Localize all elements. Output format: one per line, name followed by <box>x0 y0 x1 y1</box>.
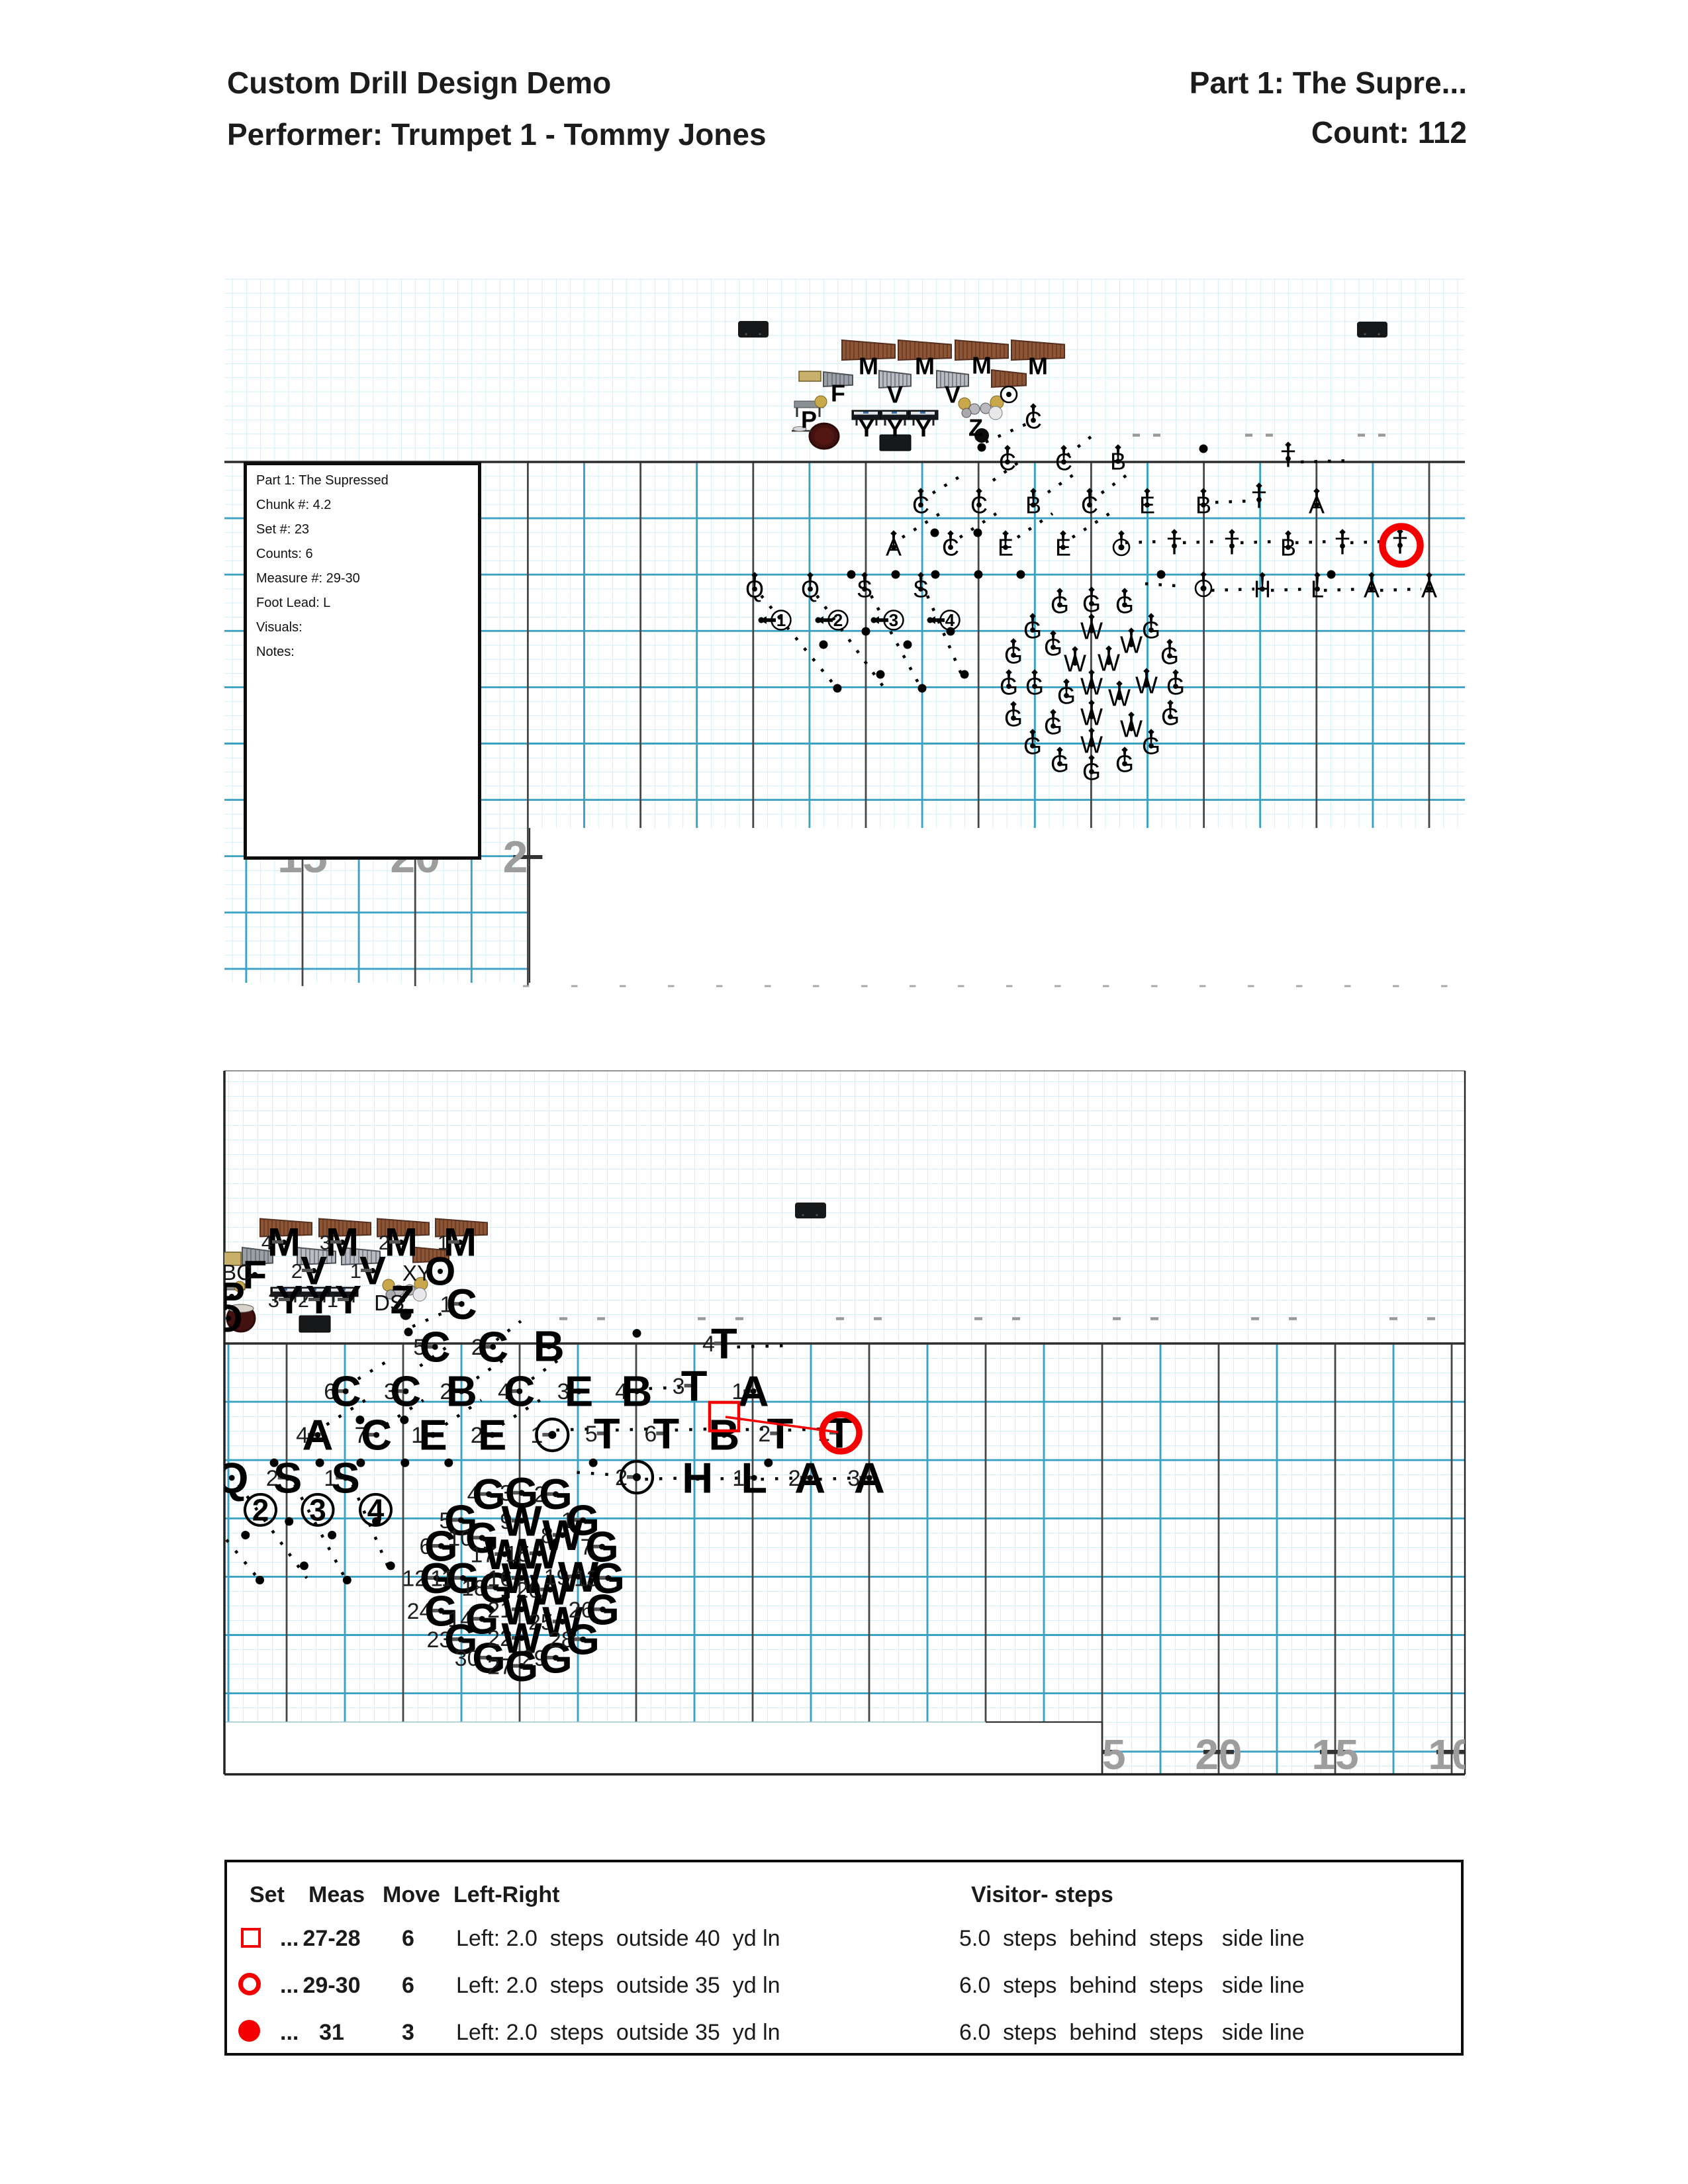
svg-text:2: 2 <box>252 1492 269 1527</box>
svg-text:3: 3 <box>268 1289 279 1312</box>
svg-text:Z: Z <box>968 414 983 441</box>
svg-text:XY: XY <box>402 1261 432 1285</box>
svg-text:2: 2 <box>379 1231 390 1254</box>
svg-text:3: 3 <box>889 610 898 630</box>
svg-text:3: 3 <box>320 1231 331 1254</box>
svg-text:1: 1 <box>193 1492 211 1527</box>
svg-text:2: 2 <box>833 610 843 630</box>
svg-text:10: 10 <box>1428 1731 1475 1778</box>
svg-text:2: 2 <box>298 1289 309 1312</box>
svg-text:V: V <box>887 381 903 408</box>
svg-text:F: F <box>831 380 845 407</box>
svg-text:M: M <box>1028 353 1048 380</box>
svg-text:1: 1 <box>438 1231 449 1254</box>
svg-text:20: 20 <box>1195 1731 1242 1778</box>
svg-text:BC: BC <box>222 1260 252 1285</box>
svg-text:25: 25 <box>1078 1731 1125 1778</box>
svg-text:Y: Y <box>915 415 931 442</box>
svg-text:Y: Y <box>859 415 874 442</box>
svg-text:Y: Y <box>887 415 903 442</box>
svg-text:1: 1 <box>350 1259 361 1283</box>
svg-text:1: 1 <box>327 1289 338 1312</box>
svg-text:4: 4 <box>367 1492 385 1527</box>
svg-text:M: M <box>915 353 935 380</box>
svg-text:V: V <box>945 381 961 408</box>
svg-text:P: P <box>801 406 817 433</box>
svg-text:4: 4 <box>261 1231 273 1254</box>
svg-text:2: 2 <box>291 1259 303 1283</box>
svg-text:25: 25 <box>503 832 553 882</box>
svg-text:M: M <box>972 352 992 379</box>
svg-text:M: M <box>859 353 878 380</box>
svg-text:Q: Q <box>158 1454 191 1502</box>
svg-text:4: 4 <box>945 610 955 630</box>
svg-text:15: 15 <box>1311 1731 1358 1778</box>
svg-text:3: 3 <box>309 1492 326 1527</box>
svg-text:1: 1 <box>776 610 786 630</box>
svg-text:DS: DS <box>374 1291 404 1315</box>
